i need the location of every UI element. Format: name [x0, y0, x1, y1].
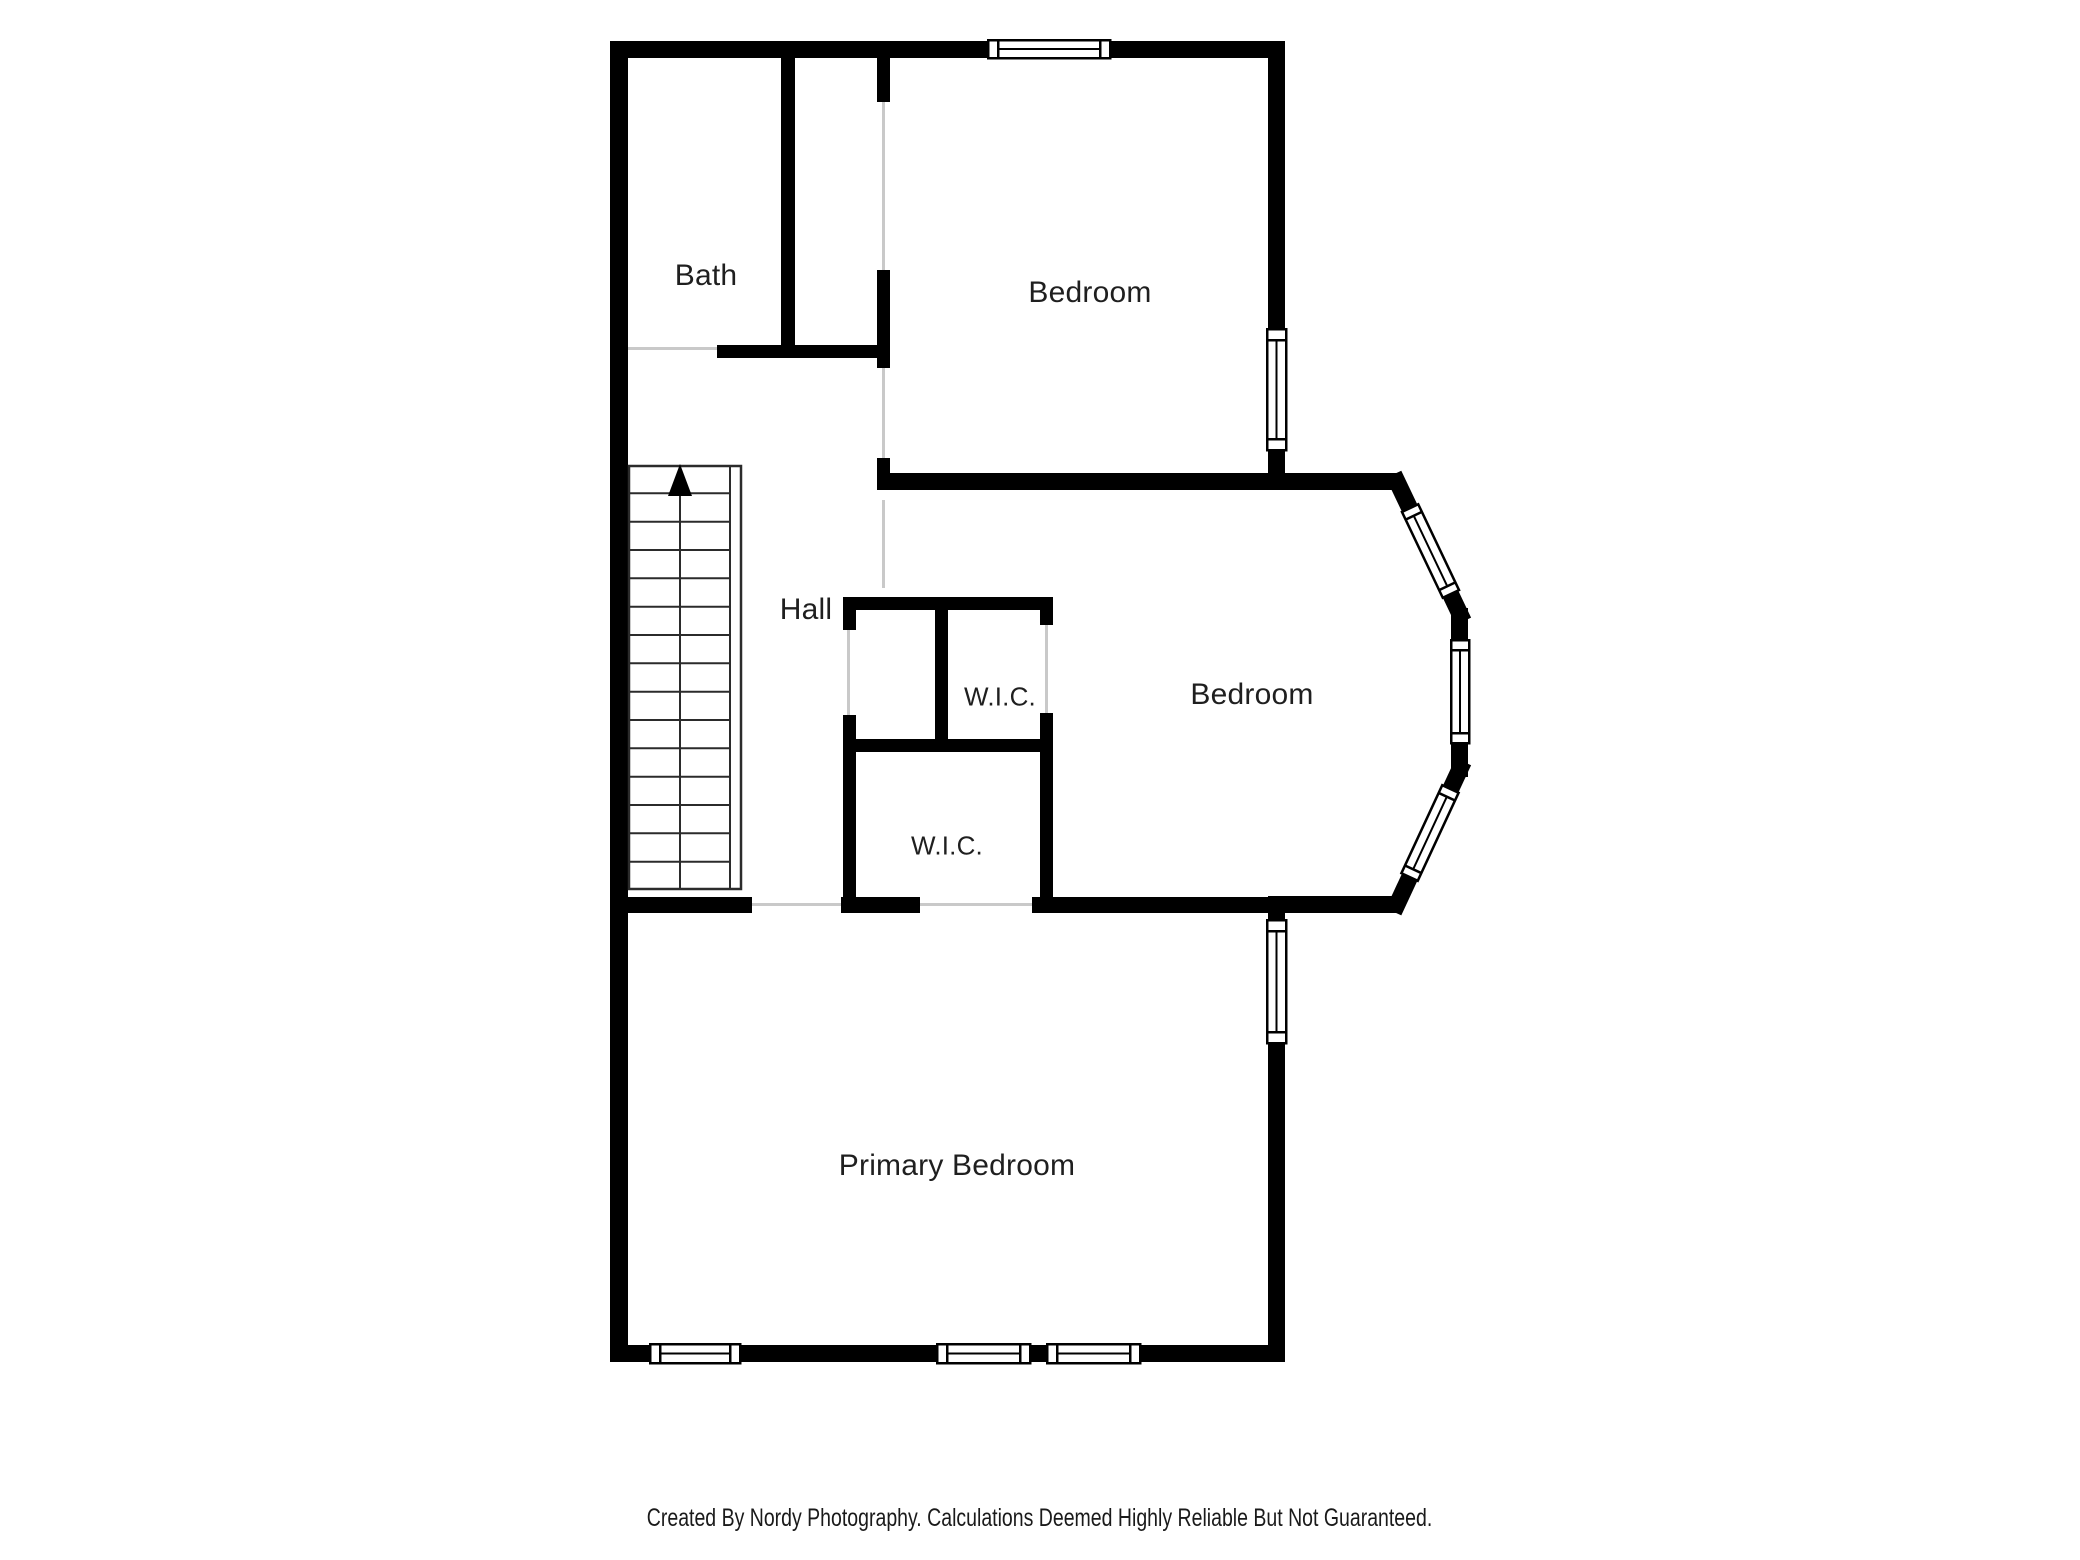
- opening-wic-lower-door: [920, 903, 1032, 906]
- window: [988, 40, 1110, 58]
- opening-hall-closet-door: [847, 630, 850, 715]
- window: [650, 1344, 740, 1363]
- wall-wic-bottom: [843, 739, 1053, 752]
- window: [1402, 504, 1459, 598]
- opening-bedroom-top-door: [882, 368, 885, 458]
- wall-bath-bottom: [717, 345, 890, 358]
- window: [1451, 640, 1469, 743]
- stairs-outline: [629, 466, 741, 889]
- wall-bedroom-divider: [877, 473, 1397, 490]
- room-label-bedroom-top: Bedroom: [1028, 276, 1151, 310]
- window: [1047, 1344, 1140, 1363]
- window: [1267, 920, 1286, 1043]
- opening-closet: [882, 102, 885, 270]
- floorplan-drawing: [0, 0, 2080, 1560]
- wall-left: [610, 41, 628, 1362]
- opening-wic-upper-door: [1045, 625, 1048, 713]
- opening-bath-door: [628, 347, 717, 350]
- room-label-bedroom-middle: Bedroom: [1190, 678, 1313, 712]
- opening-bedroom-middle-door: [882, 500, 885, 588]
- opening-primary-door: [752, 903, 841, 906]
- window: [1267, 329, 1286, 450]
- room-label-bath: Bath: [675, 259, 738, 293]
- footer: Created By Nordy Photography. Calculatio…: [0, 1504, 2080, 1533]
- wall-bay-bottom: [1276, 896, 1397, 913]
- wall-wic-middle: [935, 597, 948, 752]
- room-label-wic-lower: W.I.C.: [911, 831, 983, 862]
- room-label-hall: Hall: [780, 593, 832, 627]
- wall-top: [610, 41, 1285, 58]
- room-label-wic-upper: W.I.C.: [964, 682, 1036, 713]
- footer-credit: Created By Nordy Photography. Calculatio…: [647, 1504, 1432, 1533]
- window: [937, 1344, 1030, 1363]
- wall-bath-right: [781, 49, 795, 358]
- floorplan-page: Bath Bedroom Hall W.I.C. Bedroom W.I.C. …: [0, 0, 2080, 1560]
- window: [1401, 785, 1458, 881]
- stairs: [629, 464, 741, 889]
- room-label-primary-bedroom: Primary Bedroom: [839, 1149, 1075, 1183]
